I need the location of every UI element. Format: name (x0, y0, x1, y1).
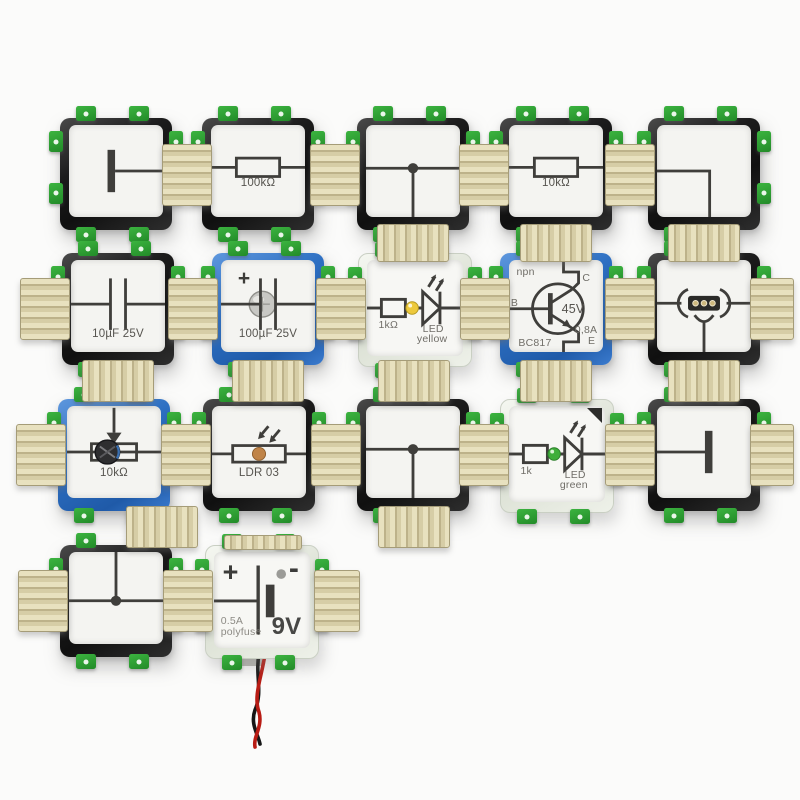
brick-connector (605, 424, 655, 486)
capacitor-value-label: 10µF 25V (92, 328, 144, 340)
brick-connector (232, 360, 304, 402)
brick-wire-t-junction-down (357, 118, 469, 230)
fuse-label-line2: polyfuse (221, 626, 262, 638)
pcb-tab (275, 655, 295, 670)
pcb-tab (373, 106, 393, 121)
pcb-tab (757, 131, 771, 152)
pcb-tab (717, 106, 737, 121)
brick-face (366, 406, 460, 498)
led-yellow-circuit-symbol-icon (367, 260, 463, 356)
brick-connector (16, 424, 66, 486)
brick-connector (378, 506, 450, 548)
part-number-label: BC817 (518, 337, 551, 349)
brick-face (366, 125, 460, 217)
pcb-tab (717, 508, 737, 523)
pcb-tab (129, 106, 149, 121)
voltage-label: 45V (562, 302, 585, 316)
pcb-tab (74, 508, 94, 523)
brick-wire-t-junction-up (60, 545, 172, 657)
brick-transistor-npn: npn C B 45V 0,8A E BC817 (500, 253, 612, 365)
brick-ldr: LDR 03 (203, 399, 315, 511)
battery-plus-label: + (223, 557, 239, 588)
pcb-tab (49, 183, 63, 204)
brick-face: + - 0.5A polyfuse 9V (214, 552, 310, 648)
brick-connector (668, 224, 740, 262)
pcb-tab (49, 131, 63, 152)
brick-connector (460, 278, 510, 340)
brick-face: + 100µF 25V (221, 260, 315, 352)
brick-face: 1kΩ LED yellow (367, 260, 463, 356)
pcb-tab (218, 106, 238, 121)
brick-connector (605, 144, 655, 206)
series-resistor-label: 1kΩ (379, 319, 399, 331)
brick-face (657, 125, 751, 217)
brick-connector (311, 424, 361, 486)
brick-connector (605, 278, 655, 340)
battery-minus-label: - (289, 552, 299, 586)
t-junction-up-symbol-icon (69, 552, 163, 644)
brick-measurement-socket (648, 253, 760, 365)
brick-wire-terminal-left (648, 399, 760, 511)
brick-connector (161, 424, 211, 486)
brick-face (69, 125, 163, 217)
measurement-socket-symbol-icon (657, 260, 751, 352)
brick-connector (750, 278, 794, 340)
resistor-value-label: 100kΩ (241, 177, 276, 189)
pcb-tab (218, 227, 238, 242)
resistor-symbol-icon (211, 125, 305, 217)
brick-connector (459, 144, 509, 206)
brick-battery-9v: + - 0.5A polyfuse 9V (205, 545, 319, 659)
pcb-tab (569, 106, 589, 121)
t-junction-symbol-icon (366, 125, 460, 217)
brick-face: 10kΩ (509, 125, 603, 217)
brick-connector (459, 424, 509, 486)
brick-connector (377, 224, 449, 262)
brick-face (657, 406, 751, 498)
battery-voltage-label: 9V (272, 613, 302, 641)
ldr-value-label: LDR 03 (239, 467, 279, 479)
brick-connector (18, 570, 68, 632)
capacitor-value-label: 100µF 25V (239, 328, 297, 340)
brick-face: LDR 03 (212, 406, 306, 498)
brick-connector (314, 570, 360, 632)
polarity-plus-label: + (238, 267, 250, 291)
pcb-tab (76, 106, 96, 121)
resistor-value-label: 10kΩ (542, 177, 570, 189)
pcb-tab (78, 241, 98, 256)
brick-face: 1k LED green (509, 406, 605, 502)
brick-connector (310, 144, 360, 206)
brick-capacitor-100uf: + 100µF 25V (212, 253, 324, 365)
led-green-circuit-symbol-icon (509, 406, 605, 502)
pcb-tab (426, 106, 446, 121)
scene: 100kΩ 10kΩ 10µF (0, 0, 800, 800)
series-resistor-label: 1k (521, 465, 533, 477)
brick-face: npn C B 45V 0,8A E BC817 (509, 260, 603, 352)
corner-wire-symbol-icon (657, 125, 751, 217)
brick-connector (168, 278, 218, 340)
pcb-tab (129, 654, 149, 669)
ldr-symbol-icon (212, 406, 306, 498)
base-label: B (511, 297, 518, 309)
resistor-symbol-icon (509, 125, 603, 217)
brick-resistor-10k: 10kΩ (500, 118, 612, 230)
pcb-tab (76, 654, 96, 669)
brick-led-green: 1k LED green (500, 399, 614, 513)
pcb-tab (219, 508, 239, 523)
pcb-tab (570, 509, 590, 524)
brick-connector (668, 360, 740, 402)
pcb-tab (222, 655, 242, 670)
pcb-tab (76, 227, 96, 242)
brick-wire-terminal-right (60, 118, 172, 230)
pcb-tab (757, 183, 771, 204)
pcb-tab (272, 508, 292, 523)
brick-resistor-100k: 100kΩ (202, 118, 314, 230)
brick-connector (520, 224, 592, 262)
pcb-tab (271, 227, 291, 242)
pcb-tab (228, 241, 248, 256)
brick-led-yellow: 1kΩ LED yellow (358, 253, 472, 367)
pcb-tab (516, 106, 536, 121)
brick-wire-corner-left-down (648, 118, 760, 230)
brick-connector (126, 506, 198, 548)
brick-wire-t-junction-down-2 (357, 399, 469, 511)
brick-connector (20, 278, 70, 340)
brick-connector (750, 424, 794, 486)
brick-connector (224, 535, 302, 550)
t-junction-symbol-icon (366, 406, 460, 498)
brick-face: 10µF 25V (71, 260, 165, 352)
terminal-right-symbol-icon (69, 125, 163, 217)
terminal-left-symbol-icon (657, 406, 751, 498)
brick-face (69, 552, 163, 644)
pcb-tab (281, 241, 301, 256)
pcb-tab (517, 509, 537, 524)
potentiometer-symbol-icon (67, 406, 161, 498)
brick-connector (82, 360, 154, 402)
collector-label: C (582, 272, 590, 284)
potentiometer-value-label: 10kΩ (100, 467, 128, 479)
pcb-tab (664, 106, 684, 121)
brick-potentiometer-10k: 10kΩ (58, 399, 170, 511)
led-label-line2: yellow (417, 333, 447, 345)
pcb-tab (664, 508, 684, 523)
brick-connector (378, 360, 450, 402)
pcb-tab (76, 533, 96, 548)
led-label-line2: green (560, 479, 588, 491)
emitter-label: E (588, 335, 595, 347)
brick-capacitor-10uf: 10µF 25V (62, 253, 174, 365)
brick-connector (162, 144, 212, 206)
brick-connector (520, 360, 592, 402)
transistor-type-label: npn (517, 266, 535, 278)
brick-connector (163, 570, 213, 632)
pcb-tab (131, 241, 151, 256)
brick-face: 10kΩ (67, 406, 161, 498)
pcb-tab (129, 227, 149, 242)
brick-face (657, 260, 751, 352)
pcb-tab (271, 106, 291, 121)
brick-face: 100kΩ (211, 125, 305, 217)
brick-connector (316, 278, 366, 340)
